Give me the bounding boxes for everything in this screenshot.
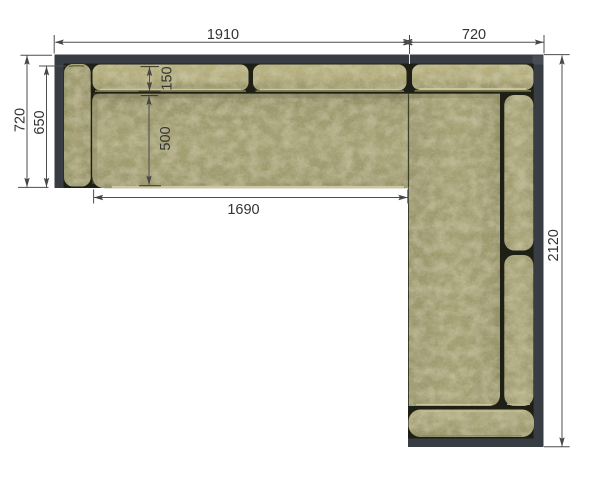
svg-text:2120: 2120 (546, 229, 562, 261)
svg-text:1910: 1910 (207, 27, 239, 43)
svg-text:500: 500 (158, 126, 174, 150)
svg-text:1690: 1690 (227, 202, 259, 218)
svg-text:720: 720 (462, 27, 486, 43)
svg-text:150: 150 (160, 66, 176, 90)
svg-text:650: 650 (32, 110, 48, 134)
svg-text:720: 720 (13, 108, 29, 132)
